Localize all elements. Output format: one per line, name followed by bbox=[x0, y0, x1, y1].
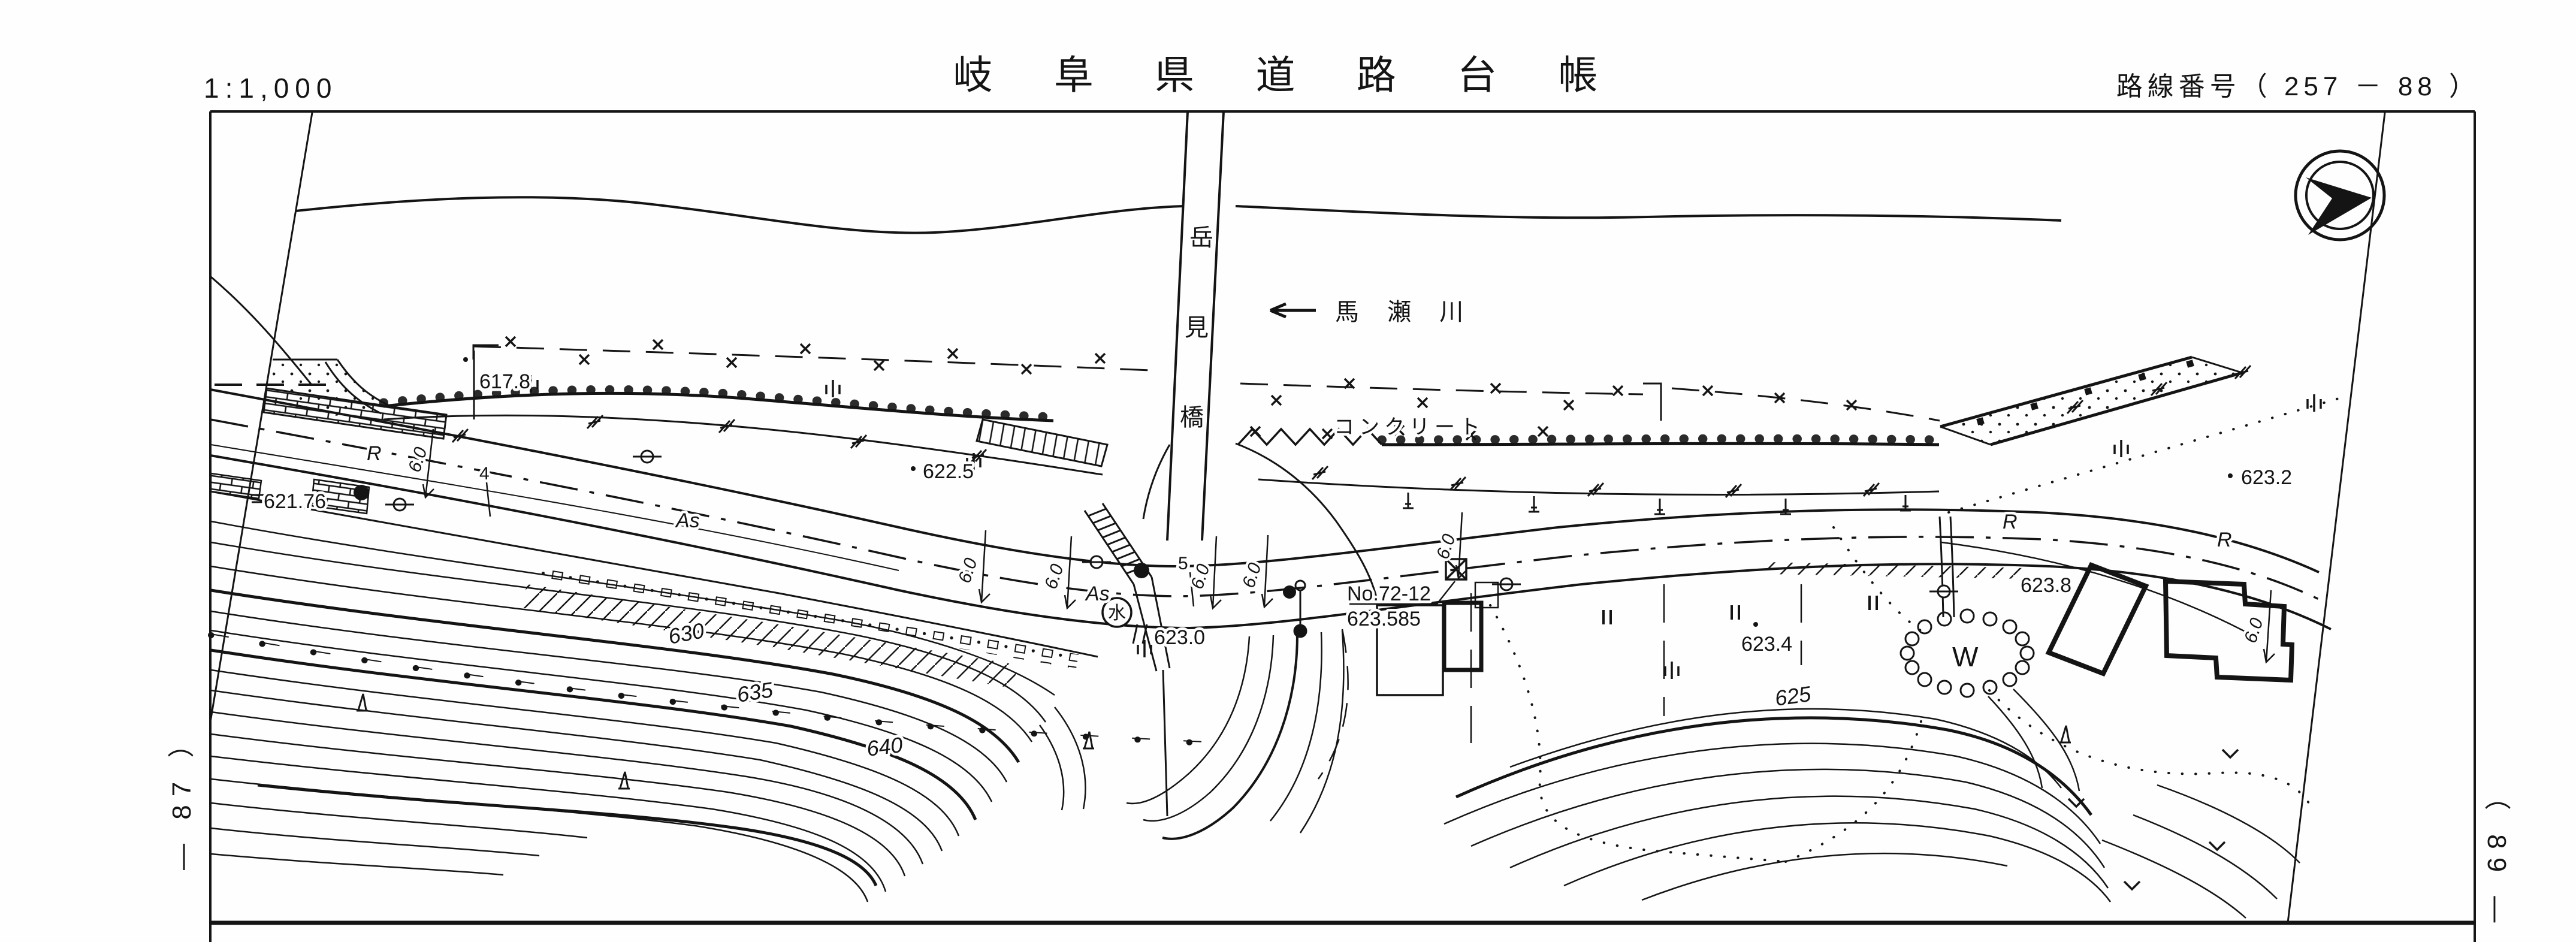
station-number: No.72-12 bbox=[1347, 582, 1431, 605]
river-label: 馬 瀬 川 bbox=[1270, 299, 1474, 325]
fence-lines bbox=[473, 345, 1940, 421]
bridge-char-2: 見 bbox=[1185, 315, 1209, 341]
manhole-label: 水 bbox=[1108, 603, 1126, 623]
right-match-line bbox=[2288, 113, 2385, 923]
sheet-frame bbox=[210, 111, 2475, 942]
building-3-annex bbox=[1444, 603, 1481, 670]
svg-text:6.0: 6.0 bbox=[955, 555, 981, 585]
bridge-char-1: 岳 bbox=[1189, 225, 1213, 251]
elev-621-76: 621.76 bbox=[264, 490, 326, 513]
elev-623-0: 623.0 bbox=[1154, 626, 1205, 649]
river-lines bbox=[296, 197, 2061, 233]
elev-617-8: 617.8 bbox=[479, 370, 530, 393]
map-canvas: 馬 瀬 川 岳 見 橋 bbox=[0, 0, 2576, 942]
svg-text:6.0: 6.0 bbox=[2240, 615, 2267, 645]
sheet-references: ― 87 ） （ 89 ― bbox=[167, 723, 2511, 931]
bridge bbox=[1143, 111, 1377, 599]
svg-text:6.0: 6.0 bbox=[1041, 561, 1067, 591]
gravel-band bbox=[1940, 357, 2242, 445]
r-mark-right-1: R bbox=[2003, 511, 2018, 533]
contour-label-635: 635 bbox=[735, 677, 775, 707]
asphalt-left: As bbox=[675, 509, 700, 532]
contours-right-valley bbox=[1444, 689, 2300, 918]
r-mark-right-2: R bbox=[2217, 529, 2232, 551]
flow-arrow-icon bbox=[1270, 304, 1316, 317]
stairway bbox=[1085, 503, 1170, 816]
svg-text:6.0: 6.0 bbox=[1239, 560, 1265, 590]
r-mark-left: R bbox=[367, 442, 382, 465]
asphalt-mid: As bbox=[1085, 582, 1110, 605]
station-tick-4: 4 bbox=[479, 464, 490, 484]
north-arrow-icon bbox=[2296, 151, 2384, 240]
well-label: W bbox=[1952, 641, 1979, 672]
slope-flags bbox=[357, 694, 2071, 789]
elev-623-4: 623.4 bbox=[1741, 633, 1792, 656]
building-2 bbox=[2166, 581, 2292, 680]
road-ledger-sheet: 1:1,000 岐 阜 県 道 路 台 帳 路線番号（ 257 － 88 ） bbox=[0, 0, 2576, 942]
left-sheet-ref: ― 87 ） bbox=[167, 723, 197, 870]
station-tick-5: 5 bbox=[1178, 554, 1188, 573]
contour-label-640: 640 bbox=[865, 732, 904, 761]
elev-622-5: 622.5 bbox=[923, 460, 974, 483]
elev-623-2: 623.2 bbox=[2241, 466, 2292, 489]
svg-text:6.0: 6.0 bbox=[1433, 532, 1459, 561]
concrete-label: コンクリート bbox=[1334, 416, 1485, 439]
contour-label-625: 625 bbox=[1773, 681, 1813, 711]
contours-left-slope bbox=[211, 521, 1055, 902]
bridge-char-3: 橋 bbox=[1180, 404, 1204, 431]
river-name: 馬 瀬 川 bbox=[1335, 299, 1474, 325]
pond: W bbox=[1901, 517, 2034, 697]
right-sheet-ref: （ 89 ― bbox=[2482, 784, 2511, 931]
station-elevation: 623.585 bbox=[1347, 608, 1421, 630]
revetment bbox=[383, 390, 1939, 494]
contour-625 bbox=[1456, 718, 2091, 815]
elev-623-8: 623.8 bbox=[2021, 574, 2071, 597]
valve-symbol bbox=[1294, 581, 1306, 637]
svg-text:6.0: 6.0 bbox=[404, 445, 431, 475]
